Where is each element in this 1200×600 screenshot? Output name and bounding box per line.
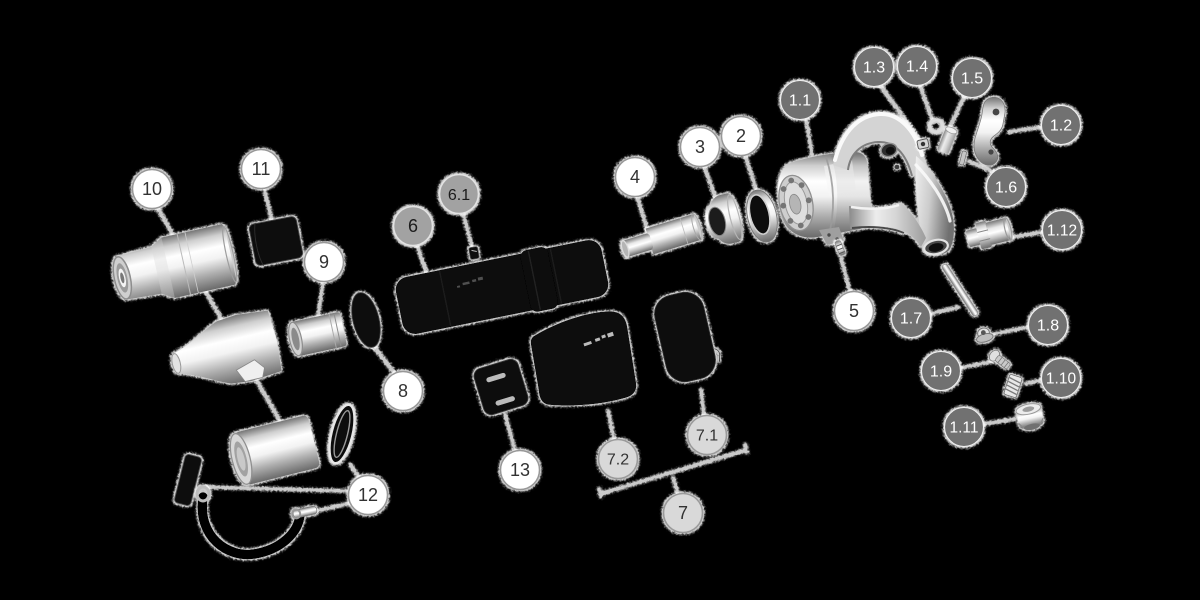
svg-text:1.10: 1.10 (1046, 371, 1077, 388)
svg-text:1.5: 1.5 (961, 71, 983, 88)
svg-text:5: 5 (849, 301, 859, 321)
svg-text:11: 11 (252, 159, 271, 179)
svg-text:8: 8 (398, 381, 408, 401)
svg-text:7.2: 7.2 (607, 452, 629, 469)
svg-text:2: 2 (736, 126, 746, 146)
svg-text:1.7: 1.7 (900, 311, 922, 328)
svg-text:1.8: 1.8 (1037, 318, 1059, 335)
svg-text:1.9: 1.9 (930, 364, 952, 381)
svg-text:9: 9 (319, 252, 329, 272)
svg-text:1.1: 1.1 (789, 93, 811, 110)
svg-text:7.1: 7.1 (696, 428, 718, 445)
svg-text:6.1: 6.1 (448, 187, 470, 204)
svg-text:3: 3 (695, 137, 705, 157)
svg-text:13: 13 (510, 460, 530, 480)
svg-text:10: 10 (142, 179, 162, 199)
svg-text:6: 6 (408, 216, 418, 236)
svg-text:1.4: 1.4 (906, 59, 928, 76)
svg-text:12: 12 (358, 485, 378, 505)
svg-text:1.11: 1.11 (949, 420, 978, 437)
svg-text:7: 7 (678, 503, 688, 523)
svg-text:4: 4 (630, 167, 640, 187)
svg-text:1.6: 1.6 (995, 180, 1017, 197)
svg-text:1.3: 1.3 (863, 60, 885, 77)
svg-text:1.2: 1.2 (1050, 118, 1072, 135)
svg-text:1.12: 1.12 (1047, 223, 1077, 240)
